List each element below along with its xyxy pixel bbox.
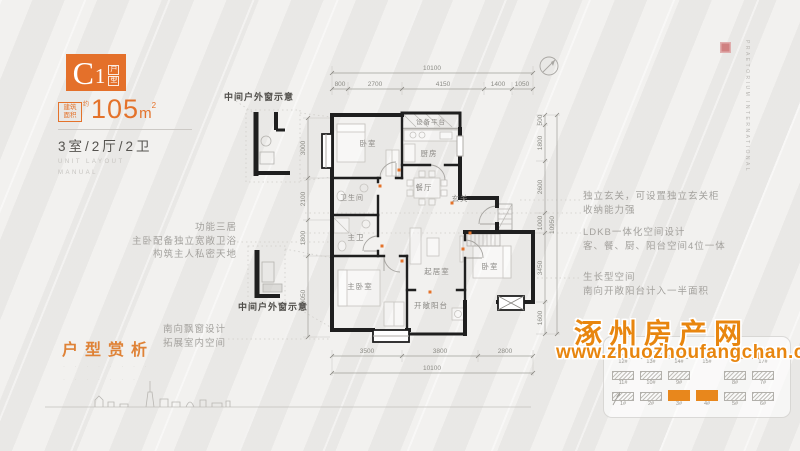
building-2: 2# bbox=[640, 392, 662, 408]
svg-text:1800: 1800 bbox=[300, 230, 307, 245]
room-label-living: 起居室 bbox=[424, 266, 450, 276]
room-label-dining: 餐厅 bbox=[416, 183, 433, 192]
detail-label-top: 中间户外窗示意 bbox=[224, 90, 294, 103]
corner-english-text: PRAETORIUM INTERNATIONAL bbox=[744, 40, 750, 130]
area-value: 105 bbox=[91, 96, 139, 123]
logo-number: 1 bbox=[95, 66, 106, 87]
seal-icon bbox=[720, 42, 731, 53]
caption-manual: MANUAL bbox=[58, 170, 98, 176]
north-arrow-icon bbox=[609, 389, 625, 407]
building-8: 8# bbox=[724, 371, 746, 387]
annotation-right-1: 独立玄关，可设置独立玄关柜 收纳能力强 bbox=[583, 190, 783, 217]
svg-text:800: 800 bbox=[335, 81, 346, 88]
window-detail-mid bbox=[257, 250, 282, 298]
building-11: 11# bbox=[612, 371, 634, 387]
detail-label-mid: 中间户外窗示意 bbox=[238, 300, 308, 313]
svg-text:1400: 1400 bbox=[491, 81, 506, 88]
svg-text:2100: 2100 bbox=[300, 191, 307, 206]
building-6: 6# bbox=[752, 392, 774, 408]
annotation-left-2: 南向飘窗设计 拓展室内空间 bbox=[126, 323, 226, 350]
faint-caption-2: · · · · · · · bbox=[63, 377, 139, 383]
logo-suffix: 户 型 bbox=[108, 65, 119, 87]
compass-icon bbox=[540, 57, 558, 75]
window-detail-top bbox=[256, 112, 290, 176]
annotation-right-3: 生长型空间 南向开敞阳台计入一半面积 bbox=[583, 271, 783, 298]
building-3: 3# bbox=[668, 392, 690, 408]
svg-text:3800: 3800 bbox=[433, 348, 448, 355]
room-label-platform: 设备平台 bbox=[416, 117, 446, 126]
svg-text:500: 500 bbox=[537, 114, 544, 125]
area-approx: 约 bbox=[83, 99, 89, 108]
area-sup: 2 bbox=[152, 101, 156, 110]
corner-english-line1: PRAETORIUM bbox=[744, 40, 750, 98]
building-7: 7# bbox=[752, 371, 774, 387]
panel-divider bbox=[58, 129, 192, 130]
corner-english-line2: INTERNATIONAL bbox=[744, 101, 750, 173]
annotation-right-2: LDKB一体化空间设计 客、餐、厨、阳台空间4位一体 bbox=[583, 226, 783, 253]
annotation-left-1: 功能三居 主卧配备独立宽敞卫浴 构筑主人私密天地 bbox=[117, 221, 237, 262]
dim-right-total: 10950 bbox=[549, 216, 556, 234]
caption-unit-layout: UNIT LAYOUT bbox=[58, 159, 125, 165]
building-5: 5# bbox=[724, 392, 746, 408]
svg-text:4150: 4150 bbox=[436, 81, 451, 88]
room-label-master-bath: 主卫 bbox=[348, 232, 365, 242]
svg-text:1000: 1000 bbox=[537, 215, 544, 230]
svg-text:2800: 2800 bbox=[498, 348, 513, 355]
room-label-kitchen: 厨房 bbox=[421, 148, 438, 158]
faint-caption-1: · · · · · · · · bbox=[63, 364, 151, 370]
building-10: 10# bbox=[640, 371, 662, 387]
floorplan-page: 10100 800 2700 4150 1400 1050 3500 3800 … bbox=[0, 0, 800, 451]
city-skyline bbox=[45, 381, 531, 407]
room-label-bedroom2: 卧室 bbox=[482, 261, 499, 271]
svg-text:1050: 1050 bbox=[515, 81, 530, 88]
dim-top-total: 10100 bbox=[423, 65, 441, 72]
svg-text:2700: 2700 bbox=[368, 81, 383, 88]
room-label-bedroom1: 卧室 bbox=[360, 138, 377, 148]
svg-text:3000: 3000 bbox=[300, 140, 307, 155]
room-label-foyer: 玄关 bbox=[452, 193, 469, 203]
area-unit: m bbox=[139, 105, 152, 122]
room-labels: 卧室 设备平台 厨房 餐厅 玄关 卫生间 主卫 主卧室 起居室 卧室 开敞阳台 bbox=[340, 117, 499, 310]
unit-type-logo: C 1 户 型 bbox=[66, 54, 126, 91]
logo-letter: C bbox=[73, 58, 94, 88]
room-label-bath: 卫生间 bbox=[340, 193, 364, 202]
dim-bottom-total: 10100 bbox=[423, 365, 441, 372]
rooms-summary: 3室/2厅/2卫 bbox=[58, 135, 153, 155]
svg-text:1600: 1600 bbox=[537, 310, 544, 325]
svg-text:3500: 3500 bbox=[360, 348, 375, 355]
room-label-master: 主卧室 bbox=[347, 281, 373, 291]
svg-text:3450: 3450 bbox=[537, 260, 544, 275]
watermark-url: www.zhuozhoufangchan.com bbox=[556, 342, 800, 364]
area-tag: 建筑 面积 bbox=[58, 102, 82, 122]
svg-text:1800: 1800 bbox=[537, 135, 544, 150]
svg-text:2600: 2600 bbox=[537, 179, 544, 194]
building-4: 4# bbox=[696, 392, 718, 408]
building-9: 9# bbox=[668, 371, 690, 387]
room-label-balcony: 开敞阳台 bbox=[414, 300, 448, 310]
area-row: 建筑 面积 约 105 m 2 bbox=[58, 96, 156, 123]
